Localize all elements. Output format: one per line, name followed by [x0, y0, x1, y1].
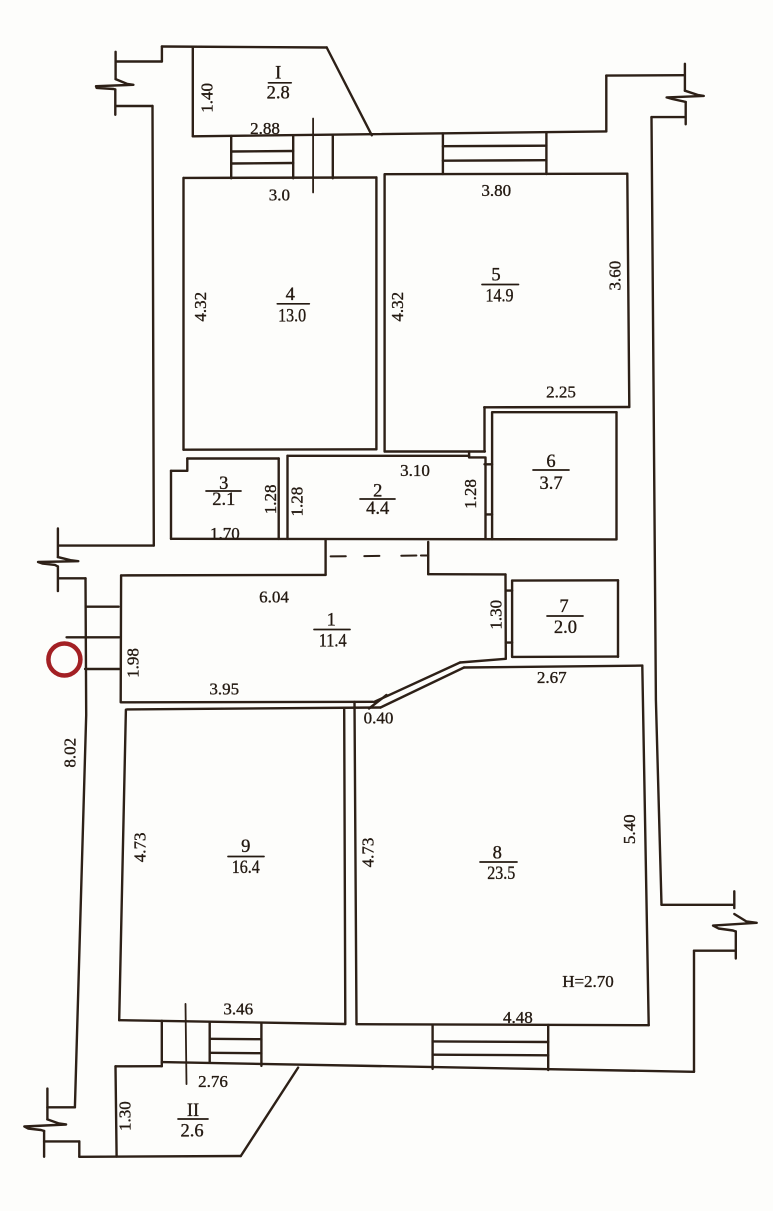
svg-text:2.76: 2.76 [198, 1072, 228, 1091]
svg-text:8: 8 [493, 843, 502, 863]
svg-text:2.8: 2.8 [267, 84, 290, 104]
svg-text:5.40: 5.40 [620, 814, 639, 844]
svg-text:4.4: 4.4 [366, 499, 389, 519]
svg-text:6.04: 6.04 [259, 588, 289, 607]
svg-text:II: II [187, 1101, 199, 1121]
svg-text:5: 5 [491, 266, 500, 286]
svg-text:1: 1 [327, 611, 336, 631]
svg-text:2.6: 2.6 [180, 1122, 203, 1142]
svg-text:2.88: 2.88 [250, 119, 280, 138]
svg-text:H=2.70: H=2.70 [562, 972, 614, 991]
svg-text:1.98: 1.98 [124, 648, 143, 678]
svg-text:2.67: 2.67 [537, 668, 567, 687]
svg-text:1.28: 1.28 [261, 485, 280, 515]
svg-text:3.0: 3.0 [269, 185, 290, 204]
svg-text:2.25: 2.25 [546, 382, 576, 401]
svg-text:13.0: 13.0 [278, 307, 306, 327]
svg-text:4.73: 4.73 [131, 832, 150, 862]
svg-text:1.70: 1.70 [210, 524, 240, 543]
svg-text:3.80: 3.80 [481, 181, 511, 200]
svg-text:1.30: 1.30 [115, 1101, 134, 1131]
svg-text:3.7: 3.7 [539, 474, 562, 494]
svg-text:11.4: 11.4 [319, 631, 347, 651]
svg-text:3.10: 3.10 [400, 461, 430, 480]
svg-text:1.28: 1.28 [461, 479, 480, 509]
svg-text:7: 7 [559, 597, 568, 617]
svg-text:23.5: 23.5 [487, 864, 515, 884]
svg-text:14.9: 14.9 [486, 287, 514, 307]
svg-text:4.48: 4.48 [503, 1008, 533, 1027]
svg-text:6: 6 [546, 452, 555, 472]
svg-text:3.46: 3.46 [223, 1000, 253, 1019]
svg-text:0.40: 0.40 [364, 708, 394, 727]
svg-text:8.02: 8.02 [60, 738, 79, 768]
svg-text:3.60: 3.60 [605, 261, 624, 291]
svg-text:1.30: 1.30 [487, 600, 506, 630]
svg-text:16.4: 16.4 [232, 858, 260, 878]
svg-text:2.1: 2.1 [212, 490, 235, 510]
svg-text:4: 4 [286, 285, 295, 305]
svg-text:1.40: 1.40 [197, 83, 216, 113]
svg-text:1.28: 1.28 [287, 487, 306, 517]
svg-text:4.32: 4.32 [191, 292, 210, 322]
svg-text:I: I [275, 64, 281, 84]
svg-text:2.0: 2.0 [554, 618, 577, 638]
svg-text:4.73: 4.73 [358, 838, 377, 868]
svg-text:9: 9 [241, 837, 250, 857]
svg-text:4.32: 4.32 [388, 292, 407, 322]
svg-text:3.95: 3.95 [209, 680, 239, 699]
